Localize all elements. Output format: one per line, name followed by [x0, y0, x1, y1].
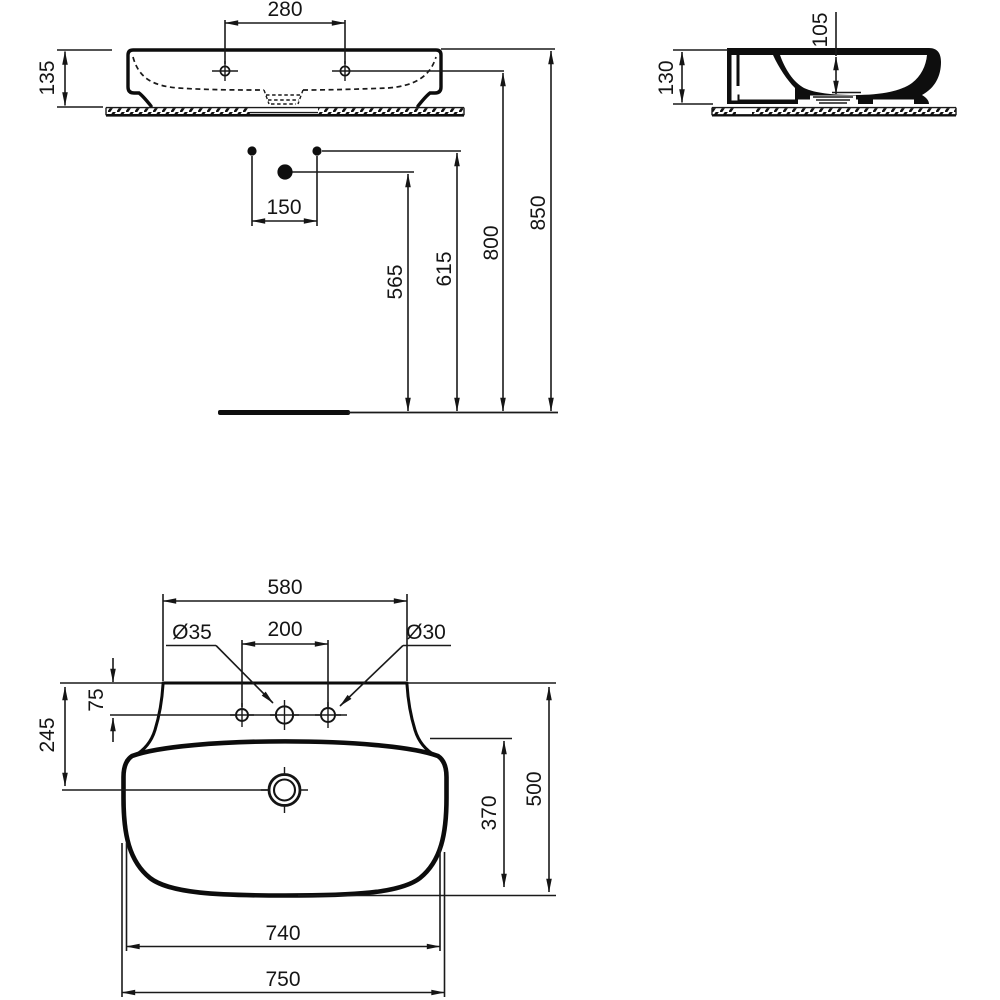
bowl-plan-outline [124, 741, 447, 895]
dim-105-label: 105 [809, 12, 832, 47]
dim-370-label: 370 [478, 795, 501, 830]
side-view: 130 105 [655, 12, 956, 115]
dia-35-label: Ø35 [172, 621, 212, 644]
left-shoulder-curve [134, 685, 163, 757]
dim-615-label: 615 [433, 251, 456, 286]
dim-750-label: 750 [265, 968, 300, 991]
dim-135-label: 135 [36, 60, 59, 95]
dim-565-label: 565 [384, 264, 407, 299]
supply-point-right-dot [312, 146, 321, 155]
dim-500-label: 500 [523, 771, 546, 806]
washbasin-technical-drawing: 280 135 150 565 615 800 850 [0, 0, 1000, 1000]
shelf-hatch-side [712, 108, 956, 116]
supply-point-left-dot [247, 146, 256, 155]
dia-30-leader [340, 646, 403, 707]
drain-point-dot [277, 164, 292, 179]
drain-plan-icon [261, 767, 308, 813]
dim-850-label: 850 [527, 195, 550, 230]
dim-800-label: 800 [480, 225, 503, 260]
floor-line [218, 410, 558, 415]
dia-30-label: Ø30 [406, 621, 446, 644]
right-shoulder-curve [407, 685, 436, 757]
dim-200-label: 200 [267, 618, 302, 641]
dia-35-leader [216, 646, 273, 704]
basin-front-outline [128, 50, 441, 106]
dim-130-label: 130 [655, 60, 678, 95]
dim-75-label: 75 [85, 688, 108, 711]
shelf-hatch-front [106, 108, 464, 116]
plan-view: 580 Ø35 Ø30 200 75 245 370 500 [36, 576, 556, 997]
dim-580-label: 580 [267, 576, 302, 599]
dim-245-label: 245 [36, 717, 59, 752]
tap-hole-plan-center-icon [270, 700, 299, 730]
dim-280-label: 280 [267, 0, 302, 21]
overflow-outlet [858, 96, 873, 105]
basin-inner-hidden-edge [133, 57, 436, 90]
front-view: 280 135 150 565 615 800 850 [36, 0, 558, 415]
dim-150-label: 150 [266, 196, 301, 219]
dim-740-label: 740 [265, 922, 300, 945]
drain-recess-hidden [264, 90, 303, 104]
